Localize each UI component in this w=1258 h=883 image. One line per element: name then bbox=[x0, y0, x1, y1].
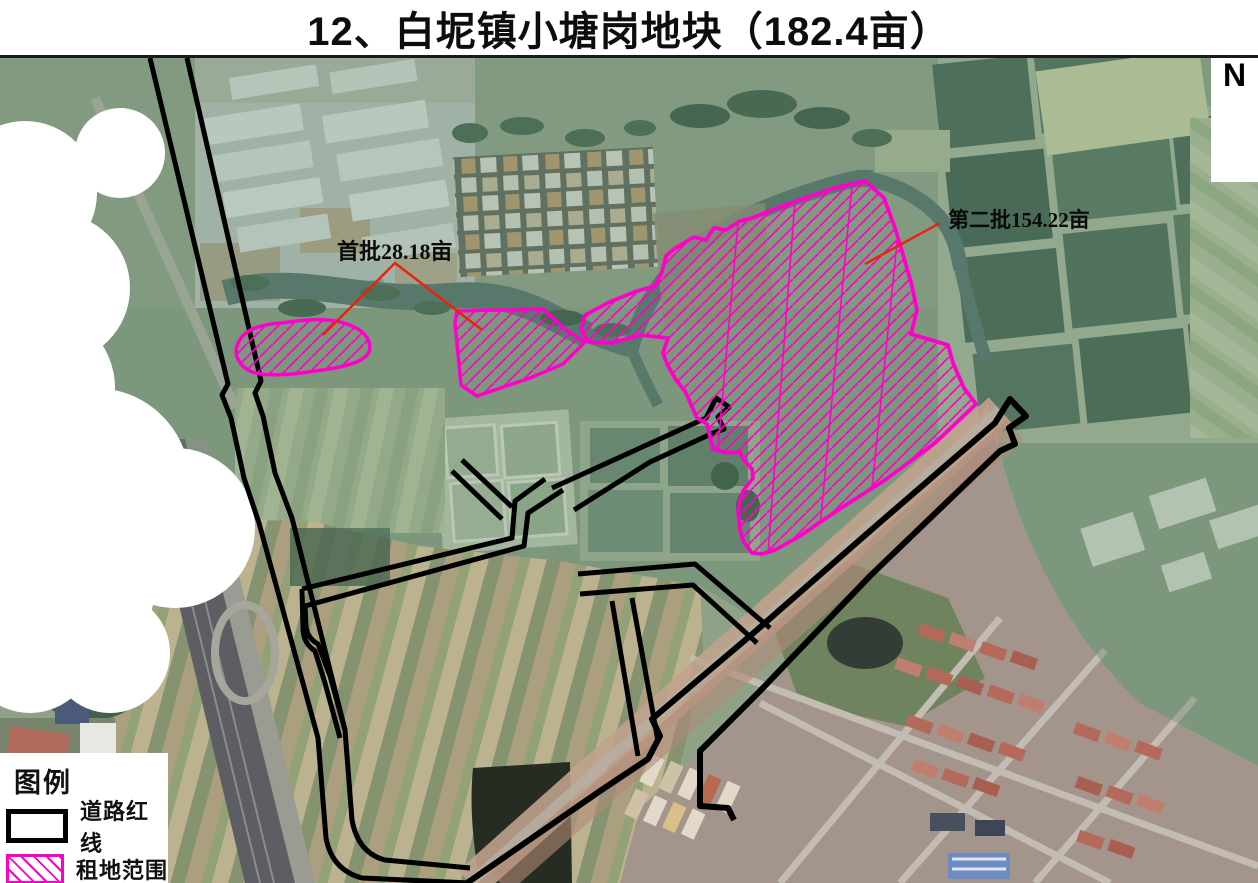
annotation-second-batch: 第二批154.22亩 bbox=[948, 204, 1090, 234]
legend: 图例 道路红线 租地范围 bbox=[0, 753, 168, 883]
satellite-background bbox=[0, 58, 1258, 883]
map-canvas: 首批28.18亩 第二批154.22亩 N 图例 道路红线 租地范围 bbox=[0, 58, 1258, 883]
legend-item-lease-area: 租地范围 bbox=[6, 852, 168, 883]
lease-area-swatch bbox=[6, 854, 64, 883]
map-sheet: 12、白坭镇小塘岗地块（182.4亩） bbox=[0, 0, 1258, 883]
north-label: N bbox=[1211, 58, 1258, 92]
annotation-first-batch: 首批28.18亩 bbox=[337, 234, 453, 266]
title-bar: 12、白坭镇小塘岗地块（182.4亩） bbox=[0, 0, 1258, 58]
legend-item-label: 道路红线 bbox=[80, 794, 168, 858]
page-title: 12、白坭镇小塘岗地块（182.4亩） bbox=[307, 0, 951, 57]
north-box: N bbox=[1211, 58, 1258, 182]
legend-item-road-redline: 道路红线 bbox=[6, 809, 168, 843]
legend-item-label: 租地范围 bbox=[76, 853, 168, 883]
road-redline-swatch bbox=[6, 809, 68, 843]
